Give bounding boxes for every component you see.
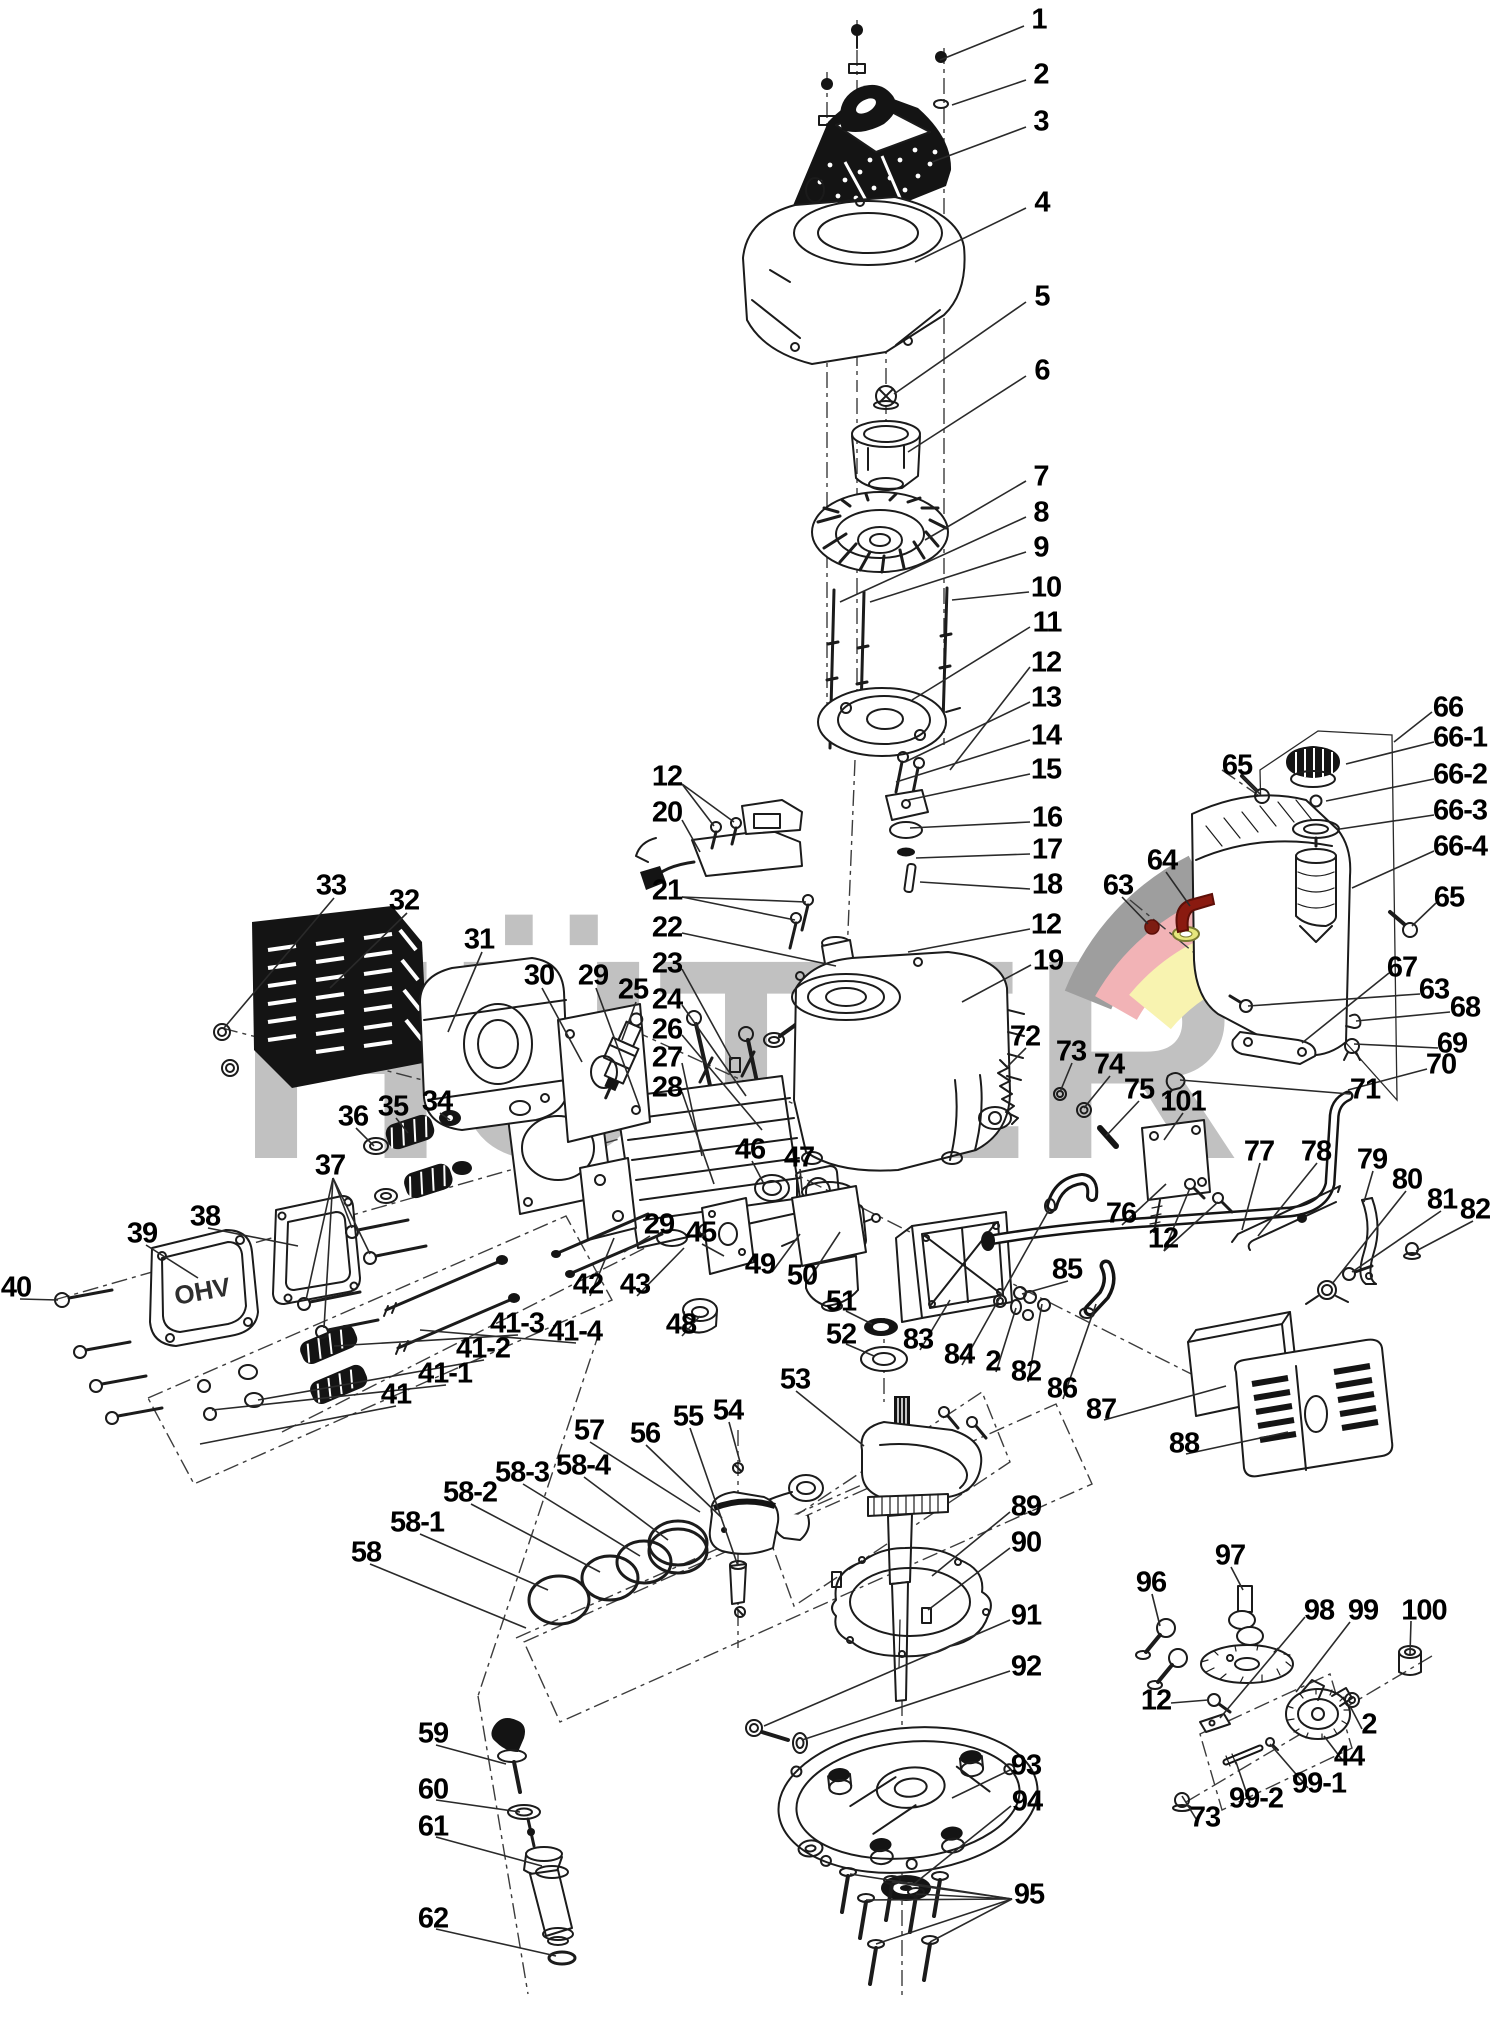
leader-line xyxy=(1412,903,1436,926)
pushrod-plate xyxy=(580,1158,636,1240)
valve-cover: OHV xyxy=(150,1230,258,1346)
oil-filler-group xyxy=(491,1718,575,1964)
part-label-50: 50 xyxy=(787,1262,817,1291)
part-label-66: 66 xyxy=(1433,694,1463,723)
part-label-94: 94 xyxy=(1012,1788,1042,1817)
part-label-38: 38 xyxy=(190,1203,220,1232)
part-label-60: 60 xyxy=(418,1776,448,1805)
crankcase-cover xyxy=(771,1715,1045,1885)
part-label-74: 74 xyxy=(1094,1051,1124,1080)
part-label-16: 16 xyxy=(1032,804,1062,833)
leader-line xyxy=(370,1564,526,1628)
part-label-71: 71 xyxy=(1350,1076,1380,1105)
part-label-66-1: 66-1 xyxy=(1433,724,1487,753)
leader-line xyxy=(436,1929,556,1956)
part-label-66-3: 66-3 xyxy=(1433,797,1487,826)
leader-line xyxy=(952,592,1029,600)
leader-line xyxy=(866,1899,1012,1900)
part-label-73a: 73 xyxy=(1056,1038,1086,1067)
leader-line xyxy=(916,854,1030,858)
part-label-80: 80 xyxy=(1392,1166,1422,1195)
camshaft-group xyxy=(1136,1586,1421,1811)
part-label-41-4: 41-4 xyxy=(548,1318,602,1347)
leader-line xyxy=(523,1484,640,1556)
part-label-34: 34 xyxy=(422,1088,452,1117)
part-label-56: 56 xyxy=(630,1420,660,1449)
leader-line xyxy=(1416,1221,1473,1251)
part-label-58-4: 58-4 xyxy=(556,1452,610,1481)
part-label-92: 92 xyxy=(1011,1653,1041,1682)
part-label-28: 28 xyxy=(652,1074,682,1103)
leader-line xyxy=(1394,712,1432,742)
part-label-41: 41 xyxy=(381,1381,411,1410)
part-label-76: 76 xyxy=(1106,1200,1136,1229)
part-label-98: 98 xyxy=(1304,1597,1334,1626)
fan-shroud xyxy=(743,197,965,364)
leader-line xyxy=(930,1899,1012,1942)
leader-line xyxy=(950,667,1030,770)
part-label-19: 19 xyxy=(1033,947,1063,976)
part-label-13: 13 xyxy=(1031,684,1061,713)
part-label-57: 57 xyxy=(574,1417,604,1446)
part-label-62: 62 xyxy=(418,1905,448,1934)
exploded-parts-diagram: HÜTER xyxy=(0,0,1495,2026)
part-label-12e: 12 xyxy=(1141,1687,1171,1716)
part-label-47: 47 xyxy=(784,1144,814,1173)
part-label-75: 75 xyxy=(1124,1076,1154,1105)
part-label-100: 100 xyxy=(1401,1597,1446,1626)
part-label-58-3: 58-3 xyxy=(495,1459,549,1488)
part-label-1: 1 xyxy=(1031,6,1046,35)
part-label-49: 49 xyxy=(745,1251,775,1280)
part-label-2: 2 xyxy=(1033,61,1048,90)
leader-line xyxy=(682,820,700,852)
flywheel-nut xyxy=(874,386,898,409)
part-label-83: 83 xyxy=(903,1326,933,1355)
part-label-63a: 63 xyxy=(1103,872,1133,901)
part-label-86: 86 xyxy=(1047,1375,1077,1404)
part-label-51: 51 xyxy=(826,1288,856,1317)
part-label-2b: 2 xyxy=(985,1348,1000,1377)
part-label-12d: 12 xyxy=(1148,1225,1178,1254)
part-label-14: 14 xyxy=(1031,722,1061,751)
part-label-88: 88 xyxy=(1169,1430,1199,1459)
part-label-99: 99 xyxy=(1348,1597,1378,1626)
part-label-6: 6 xyxy=(1034,357,1049,386)
leader-line xyxy=(1350,1706,1362,1729)
part-label-12a: 12 xyxy=(1031,649,1061,678)
part-label-7: 7 xyxy=(1033,463,1048,492)
part-label-8: 8 xyxy=(1033,499,1048,528)
part-label-27: 27 xyxy=(652,1044,682,1073)
part-label-81: 81 xyxy=(1427,1186,1457,1215)
part-label-43: 43 xyxy=(620,1271,650,1300)
part-label-12c: 12 xyxy=(652,763,682,792)
part-label-21: 21 xyxy=(652,877,682,906)
part-label-79: 79 xyxy=(1357,1146,1387,1175)
diagram-canvas: HÜTER xyxy=(0,0,1495,2026)
part-label-65b: 65 xyxy=(1434,884,1464,913)
part-label-3: 3 xyxy=(1033,108,1048,137)
leader-line xyxy=(952,80,1026,105)
part-label-48: 48 xyxy=(666,1311,696,1340)
part-label-63b: 63 xyxy=(1419,976,1449,1005)
leader-line xyxy=(1326,779,1434,801)
leader-line xyxy=(682,784,714,826)
leader-line xyxy=(1352,851,1434,888)
part-label-99-2: 99-2 xyxy=(1229,1785,1283,1814)
part-label-33: 33 xyxy=(316,872,346,901)
part-label-64: 64 xyxy=(1147,847,1177,876)
part-label-77: 77 xyxy=(1244,1138,1274,1167)
piston-group xyxy=(529,1463,778,1624)
part-label-36: 36 xyxy=(338,1103,368,1132)
starter-cup xyxy=(852,421,920,490)
flywheel xyxy=(812,492,948,572)
leader-line xyxy=(796,1391,864,1446)
part-label-18: 18 xyxy=(1032,871,1062,900)
part-label-65a: 65 xyxy=(1222,752,1252,781)
part-label-17: 17 xyxy=(1032,836,1062,865)
crank-seal-bearing xyxy=(861,1318,907,1371)
leader-line xyxy=(920,882,1030,889)
part-label-91: 91 xyxy=(1011,1602,1041,1631)
part-label-58: 58 xyxy=(351,1539,381,1568)
part-label-37: 37 xyxy=(315,1152,345,1181)
leader-line xyxy=(471,1504,600,1572)
leader-line xyxy=(1346,742,1434,764)
part-label-93: 93 xyxy=(1011,1752,1041,1781)
part-label-73b: 73 xyxy=(1190,1804,1220,1833)
leader-line xyxy=(1171,1700,1208,1703)
part-label-5: 5 xyxy=(1034,283,1049,312)
part-label-66-2: 66-2 xyxy=(1433,761,1487,790)
case-bolt-washer xyxy=(746,1720,807,1753)
leader-line xyxy=(910,822,1030,828)
part-label-29a: 29 xyxy=(578,962,608,991)
part-label-35: 35 xyxy=(378,1093,408,1122)
part-label-95: 95 xyxy=(1014,1881,1044,1910)
part-label-32: 32 xyxy=(389,887,419,916)
part-label-45: 45 xyxy=(686,1219,716,1248)
part-label-9: 9 xyxy=(1033,534,1048,563)
leader-line xyxy=(1340,815,1434,829)
part-label-25: 25 xyxy=(618,976,648,1005)
part-label-30: 30 xyxy=(524,962,554,991)
part-label-97: 97 xyxy=(1215,1542,1245,1571)
part-label-42: 42 xyxy=(573,1271,603,1300)
part-label-2c: 2 xyxy=(1361,1711,1376,1740)
part-label-68: 68 xyxy=(1450,994,1480,1023)
part-label-31: 31 xyxy=(464,926,494,955)
part-label-87: 87 xyxy=(1086,1396,1116,1425)
part-label-58-1: 58-1 xyxy=(390,1509,444,1538)
part-label-59: 59 xyxy=(418,1720,448,1749)
leader-line xyxy=(876,1899,1012,1944)
leader-line xyxy=(1332,1191,1406,1284)
part-label-90: 90 xyxy=(1011,1529,1041,1558)
part-label-26: 26 xyxy=(652,1016,682,1045)
part-label-52: 52 xyxy=(826,1321,856,1350)
leader-line xyxy=(682,784,734,822)
part-label-12b: 12 xyxy=(1031,911,1061,940)
part-label-89: 89 xyxy=(1011,1493,1041,1522)
leader-line xyxy=(940,26,1024,60)
part-label-84: 84 xyxy=(944,1341,974,1370)
part-label-53: 53 xyxy=(780,1366,810,1395)
part-label-101: 101 xyxy=(1160,1088,1205,1117)
part-label-24: 24 xyxy=(652,986,682,1015)
part-label-54: 54 xyxy=(713,1397,743,1426)
part-label-39: 39 xyxy=(127,1220,157,1249)
ignition-small-parts xyxy=(886,752,928,892)
part-label-23: 23 xyxy=(652,950,682,979)
part-label-15: 15 xyxy=(1031,756,1061,785)
part-label-10: 10 xyxy=(1031,574,1061,603)
leader-line xyxy=(908,774,1030,800)
part-label-82a: 82 xyxy=(1460,1196,1490,1225)
leader-line xyxy=(764,1620,1010,1726)
part-label-55: 55 xyxy=(673,1403,703,1432)
part-label-11: 11 xyxy=(1033,609,1062,638)
leader-line xyxy=(1152,1594,1160,1626)
part-label-72: 72 xyxy=(1010,1023,1040,1052)
part-label-61: 61 xyxy=(418,1813,448,1842)
part-label-99-1: 99-1 xyxy=(1292,1770,1346,1799)
part-label-22: 22 xyxy=(652,914,682,943)
leader-line xyxy=(1356,1012,1450,1021)
leader-line xyxy=(584,1477,668,1540)
part-label-20: 20 xyxy=(652,799,682,828)
leader-line xyxy=(908,376,1026,452)
muffler-cover xyxy=(252,906,428,1088)
part-label-66-4: 66-4 xyxy=(1433,833,1487,862)
leader-line xyxy=(925,481,1026,540)
aircleaner-cover xyxy=(1235,1340,1392,1477)
part-label-82b: 82 xyxy=(1011,1358,1041,1387)
leader-line xyxy=(646,1445,722,1518)
part-label-67: 67 xyxy=(1387,954,1417,983)
part-label-96: 96 xyxy=(1136,1569,1166,1598)
part-label-70: 70 xyxy=(1426,1051,1456,1080)
part-label-4: 4 xyxy=(1034,189,1049,218)
part-label-46: 46 xyxy=(735,1136,765,1165)
leader-line xyxy=(436,1800,520,1812)
part-label-29b: 29 xyxy=(644,1211,674,1240)
cylinder-block xyxy=(792,952,1024,1171)
part-label-78: 78 xyxy=(1301,1138,1331,1167)
part-label-41-3: 41-3 xyxy=(490,1310,544,1339)
part-label-58-2: 58-2 xyxy=(443,1479,497,1508)
leader-line xyxy=(1296,1622,1350,1692)
part-label-40: 40 xyxy=(1,1274,31,1303)
part-label-85: 85 xyxy=(1052,1256,1082,1285)
aircleaner-base xyxy=(896,1212,1020,1322)
